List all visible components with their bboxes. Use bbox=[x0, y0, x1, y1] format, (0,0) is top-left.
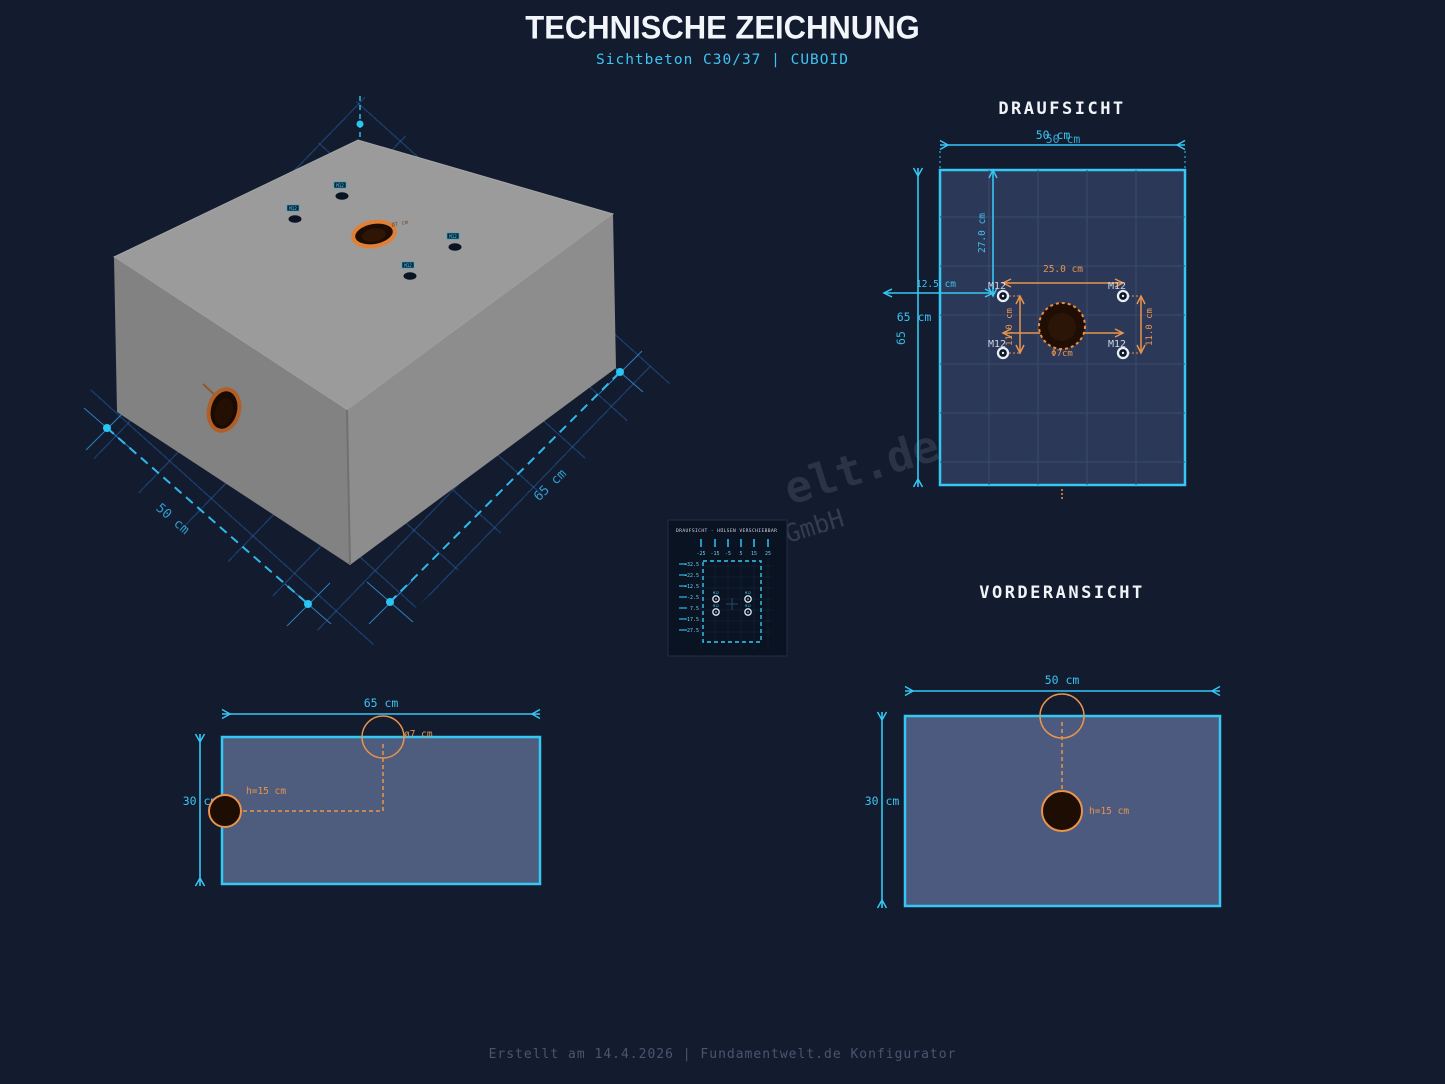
iso-dim-depth-label: 50 cm bbox=[153, 501, 193, 538]
draufsicht-dim-left: 65 cm bbox=[897, 310, 932, 324]
vorderansicht-hole-height: h=15 cm bbox=[1089, 806, 1129, 817]
inset-sleeve-label: M12 bbox=[713, 604, 719, 608]
inset-y-tick: 7.5 bbox=[690, 606, 699, 612]
draufsicht-pattern-width: 25.0 cm bbox=[1043, 264, 1083, 275]
iso-sleeve-flag: M12 bbox=[449, 234, 457, 239]
header: TECHNISCHE ZEICHNUNG Sichtbeton C30/37 |… bbox=[0, 10, 1445, 68]
iso-sleeve-flag: M12 bbox=[289, 206, 297, 211]
vorderansicht-dim-left: 30 cm bbox=[865, 794, 900, 808]
draufsicht-title: DRAUFSICHT bbox=[998, 99, 1125, 119]
inset-y-tick: -2.5 bbox=[687, 595, 699, 601]
draufsicht-pattern-height-left: 11.0 cm bbox=[1005, 308, 1015, 346]
watermark-line1: elt.de bbox=[778, 420, 945, 515]
inset-y-tick: 27.5 bbox=[687, 628, 699, 634]
draufsicht-offset-y: 27.0 cm bbox=[977, 213, 988, 253]
inset-y-tick: 17.5 bbox=[687, 617, 699, 623]
anchor-label: M12 bbox=[1108, 339, 1126, 350]
inset-x-tick: 25 bbox=[765, 551, 771, 557]
vorderansicht-view: VORDERANSICHT 50 cm 30 cm h=15 cm bbox=[865, 583, 1220, 908]
draufsicht-dim-top-echo: 50 cm bbox=[1046, 132, 1081, 146]
draufsicht-offset-x: 12.5 cm bbox=[916, 279, 956, 290]
anchor-label: M12 bbox=[988, 339, 1006, 350]
inset-x-tick: -25 bbox=[696, 551, 705, 557]
iso-view: 50 cm 65 cm Ø7 cm M12 bbox=[84, 96, 643, 626]
watermark: elt.de GmbH bbox=[778, 420, 945, 548]
anchor-label: M12 bbox=[988, 281, 1006, 292]
seitenansicht-side-hole bbox=[209, 795, 241, 827]
draufsicht-dim-left-rotated: 65 bbox=[894, 331, 908, 345]
anchor-label: M12 bbox=[1108, 281, 1126, 292]
inset-sleeve-label: M12 bbox=[745, 591, 751, 595]
inset-title: DRAUFSICHT - HÜLSEN VERSCHIEBBAR bbox=[676, 527, 777, 534]
inset-y-tick: -32.5 bbox=[684, 562, 699, 568]
inset-panel: DRAUFSICHT - HÜLSEN VERSCHIEBBAR -25 -15 bbox=[668, 520, 787, 656]
seitenansicht-dim-top: 65 cm bbox=[364, 696, 399, 710]
seitenansicht-body bbox=[222, 737, 540, 884]
inset-x-tick: -5 bbox=[725, 551, 731, 557]
drawing-canvas: 50 cm 65 cm Ø7 cm M12 bbox=[0, 0, 1445, 1084]
inset-y-tick: -12.5 bbox=[684, 584, 699, 590]
page-title: TECHNISCHE ZEICHNUNG bbox=[0, 9, 1445, 46]
vorderansicht-dim-top: 50 cm bbox=[1045, 673, 1080, 687]
seitenansicht-hole-height: h=15 cm bbox=[246, 786, 286, 797]
iso-dim-width-label: 65 cm bbox=[531, 466, 570, 504]
page-subtitle: Sichtbeton C30/37 | CUBOID bbox=[0, 52, 1445, 68]
inset-y-tick: -22.5 bbox=[684, 573, 699, 579]
inset-x-tick: 15 bbox=[751, 551, 757, 557]
inset-x-tick: -15 bbox=[710, 551, 719, 557]
inset-x-tick: 5 bbox=[739, 551, 742, 557]
vorderansicht-title: VORDERANSICHT bbox=[979, 583, 1145, 603]
iso-sleeve-flag: M12 bbox=[404, 263, 412, 268]
vorderansicht-hole bbox=[1042, 791, 1082, 831]
seitenansicht-view: 65 cm 30 cm ø7 cm h=15 cm bbox=[183, 696, 540, 886]
inset-sleeve-label: M12 bbox=[713, 591, 719, 595]
seitenansicht-hole-dia: ø7 cm bbox=[404, 729, 433, 740]
inset-sleeve-label: M12 bbox=[745, 604, 751, 608]
draufsicht-hole-label: Φ7cm bbox=[1051, 349, 1073, 359]
iso-sleeve-flag: M12 bbox=[336, 183, 344, 188]
footer-text: Erstellt am 14.4.2026 | Fundamentwelt.de… bbox=[0, 1047, 1445, 1062]
technical-drawing-page: 50 cm 65 cm Ø7 cm M12 bbox=[0, 0, 1445, 1084]
draufsicht-pattern-height-right: 11.0 cm bbox=[1145, 308, 1155, 346]
